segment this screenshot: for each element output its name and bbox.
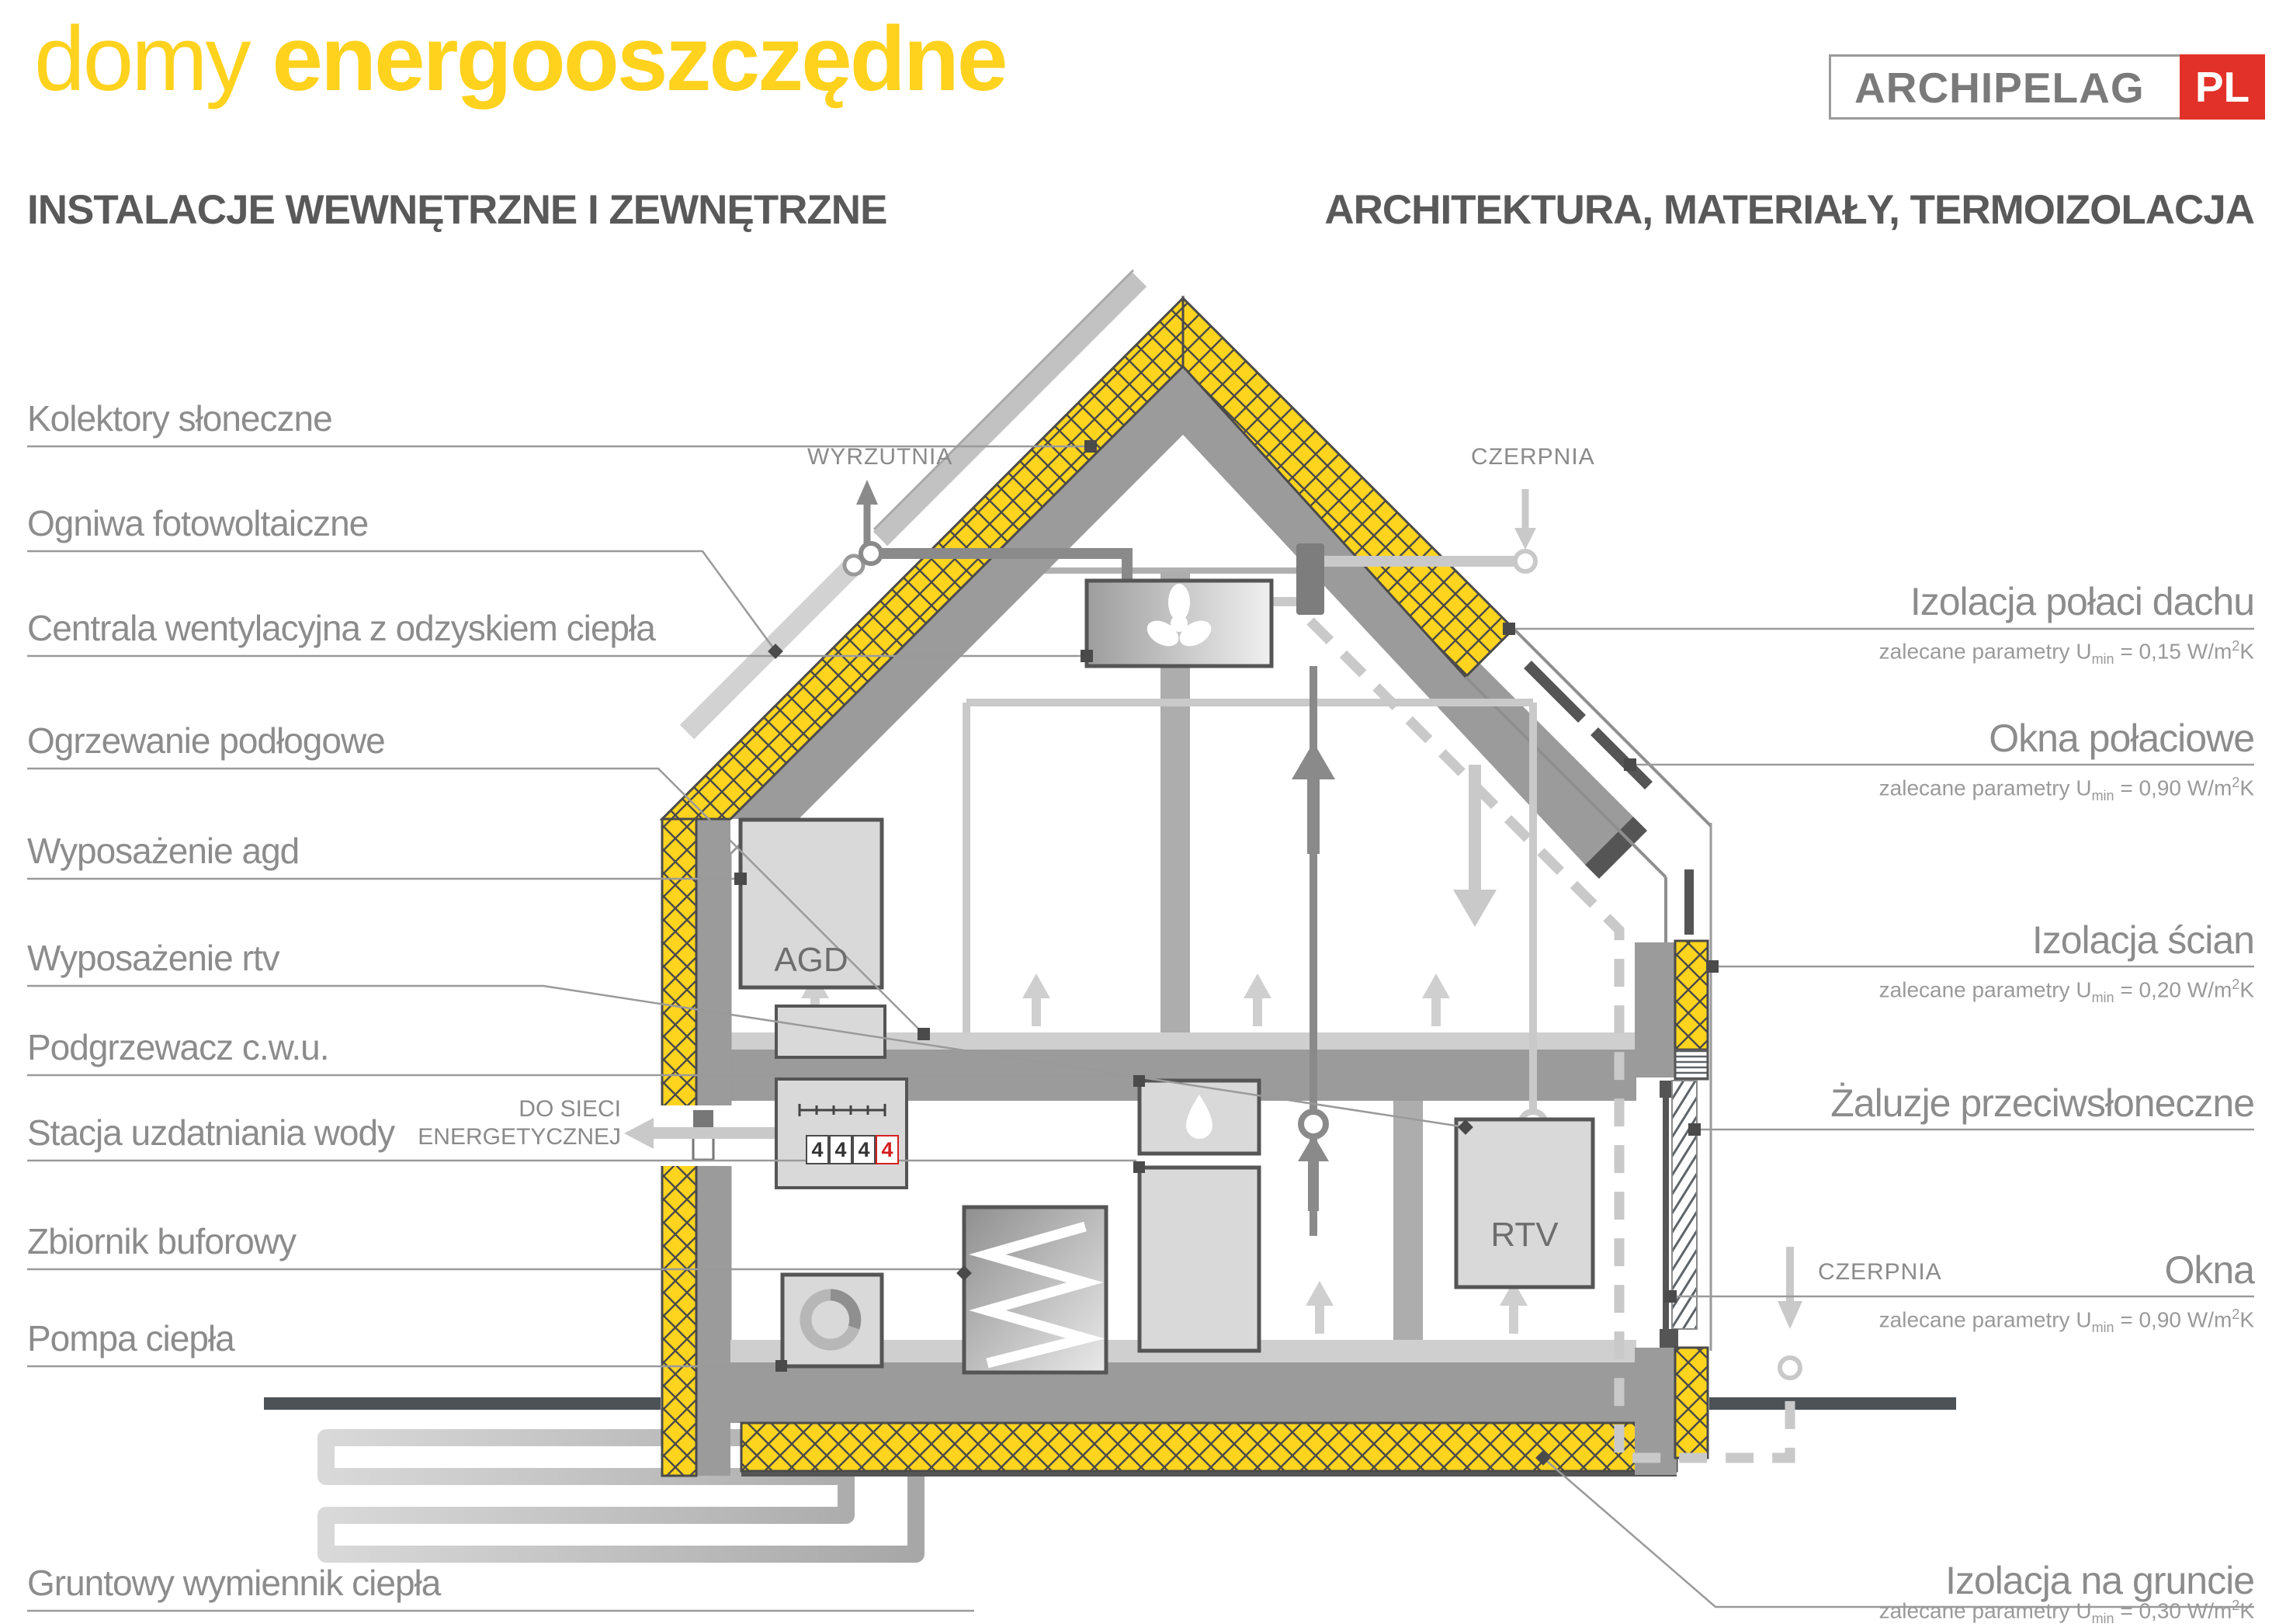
label-zaluzje-przeciwsloneczne: Żaluzje przeciwsłoneczne xyxy=(1830,1081,2254,1126)
label-okna-polaciowe: Okna połaciowe xyxy=(1989,716,2254,761)
energy-meter-box xyxy=(776,1079,907,1188)
meter-digit-2: 4 xyxy=(829,1135,852,1164)
label-izolacja-na-gruncie: Izolacja na gruncie xyxy=(1945,1558,2254,1603)
label-stacja-uzdatniania-wody: Stacja uzdatniania wody xyxy=(27,1112,394,1154)
footing-insulation-right xyxy=(1675,1348,1708,1458)
intake-damper xyxy=(1296,543,1324,615)
label-czerpnia-top: CZERPNIA xyxy=(1471,444,1595,470)
czerpnia-top-arrow-head xyxy=(1514,528,1536,550)
inverter-box xyxy=(776,1006,885,1057)
czerpnia-side-inlet xyxy=(1780,1358,1800,1378)
label-agd: AGD xyxy=(741,941,882,980)
label-podgrzewacz-cwu: Podgrzewacz c.w.u. xyxy=(27,1026,329,1068)
label-pompa-ciepla: Pompa ciepła xyxy=(27,1317,234,1359)
house-diagram xyxy=(0,0,2293,1624)
roof-window-sash-2 xyxy=(1594,731,1649,786)
param-izolacja-polaci-dachu: zalecane parametry Umin = 0,15 W/m2K xyxy=(1879,638,2254,668)
attic-exhaust-arrow xyxy=(1292,742,1335,854)
archipelag-logo: ARCHIPELAG PL xyxy=(1829,54,2265,120)
section-header-right: ARCHITEKTURA, MATERIAŁY, TERMOIZOLACJA xyxy=(1324,186,2254,234)
ground-partition-wall xyxy=(1393,1101,1423,1340)
water-treatment-box xyxy=(1140,1168,1259,1351)
page-title-bold: energooszczędne xyxy=(272,8,1005,110)
label-kolektory-sloneczne: Kolektory słoneczne xyxy=(27,397,332,439)
label-wyposazenie-rtv: Wyposażenie rtv xyxy=(27,937,279,979)
window-frame-bottom xyxy=(1660,1329,1678,1348)
page-title: domy energooszczędne xyxy=(34,6,1006,112)
page-title-light: domy xyxy=(34,8,249,110)
ground-slab xyxy=(730,1362,1677,1423)
underslab-insulation xyxy=(741,1423,1677,1471)
param-okna-polaciowe: zalecane parametry Umin = 0,90 W/m2K xyxy=(1879,775,2254,804)
czerpnia-side-arrow-head xyxy=(1778,1301,1802,1329)
heat-pump-box xyxy=(782,1275,882,1366)
label-izolacja-scian: Izolacja ścian xyxy=(2032,918,2254,963)
wall-insulation-right xyxy=(1675,941,1708,1050)
label-centrala-wentylacyjna: Centrala wentylacyjna z odzyskiem ciepła xyxy=(27,607,655,649)
grid-connection-fixture xyxy=(693,1110,713,1129)
knee-wall xyxy=(1635,942,1677,1077)
section-header-left: INSTALACJE WEWNĘTRZNE I ZEWNĘTRZNE xyxy=(27,186,886,234)
label-wyrzutnia: WYRZUTNIA xyxy=(807,444,952,470)
param-izolacja-scian: zalecane parametry Umin = 0,20 W/m2K xyxy=(1879,977,2254,1006)
rtv-appliance-box xyxy=(1456,1119,1593,1287)
label-wyposazenie-agd: Wyposażenie agd xyxy=(27,830,299,872)
infographic-canvas: domy energooszczędne ARCHIPELAG PL INSTA… xyxy=(0,0,2293,1624)
wyrzutnia-outlet xyxy=(861,543,881,564)
label-okna: Okna xyxy=(2164,1247,2254,1293)
meter-digit-3: 4 xyxy=(852,1135,876,1164)
logo-name: ARCHIPELAG xyxy=(1854,63,2145,113)
label-ogniwa-fotowoltaiczne: Ogniwa fotowoltaiczne xyxy=(27,502,368,544)
label-ogrzewanie-podlogowe: Ogrzewanie podłogowe xyxy=(27,720,385,762)
wyrzutnia-arrow-head xyxy=(856,480,878,505)
label-grid-line2: ENERGETYCZNEJ xyxy=(388,1124,621,1150)
grid-connection-socket xyxy=(693,1136,713,1160)
label-rtv: RTV xyxy=(1456,1216,1593,1254)
czerpnia-top-inlet xyxy=(1515,551,1535,571)
label-gruntowy-wymiennik: Gruntowy wymiennik ciepła xyxy=(27,1562,440,1604)
param-okna: zalecane parametry Umin = 0,90 W/m2K xyxy=(1879,1306,2254,1336)
meter-digit-4: 4 xyxy=(876,1135,899,1164)
label-zbiornik-buforowy: Zbiornik buforowy xyxy=(27,1220,296,1262)
ground-exhaust-grille xyxy=(1298,1112,1329,1211)
attic-supply-arrow xyxy=(1453,765,1497,927)
meter-digit-1: 4 xyxy=(806,1135,829,1164)
param-izolacja-na-gruncie: zalecane parametry Umin = 0,30 W/m2K xyxy=(1879,1598,2254,1624)
blind-roller-box xyxy=(1675,1050,1708,1079)
logo-tld-badge: PL xyxy=(2180,54,2265,120)
label-grid-line1: DO SIECI xyxy=(388,1096,621,1123)
label-izolacja-polaci-dachu: Izolacja połaci dachu xyxy=(1910,579,2254,624)
label-czerpnia-side: CZERPNIA xyxy=(1818,1259,1942,1286)
